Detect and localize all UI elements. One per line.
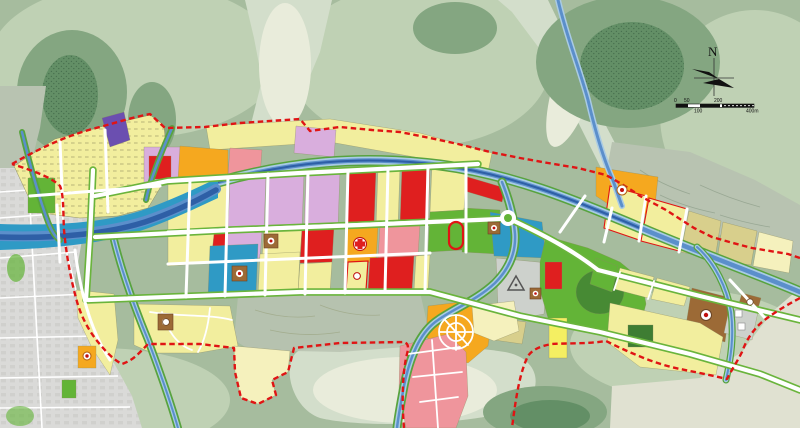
- scale-tick-400: 400m: [746, 109, 759, 115]
- hospital-cross-icon: [354, 238, 367, 251]
- planning-map: N 0 50 100 200 400m: [0, 0, 800, 428]
- map-canvas: N 0 50 100 200 400m: [0, 0, 800, 428]
- scale-tick-100: 100: [694, 109, 703, 115]
- scale-tick-200: 200: [714, 98, 723, 104]
- scale-tick-50: 50: [684, 98, 690, 104]
- scale-tick-0: 0: [674, 98, 677, 104]
- north-label: N: [708, 44, 718, 59]
